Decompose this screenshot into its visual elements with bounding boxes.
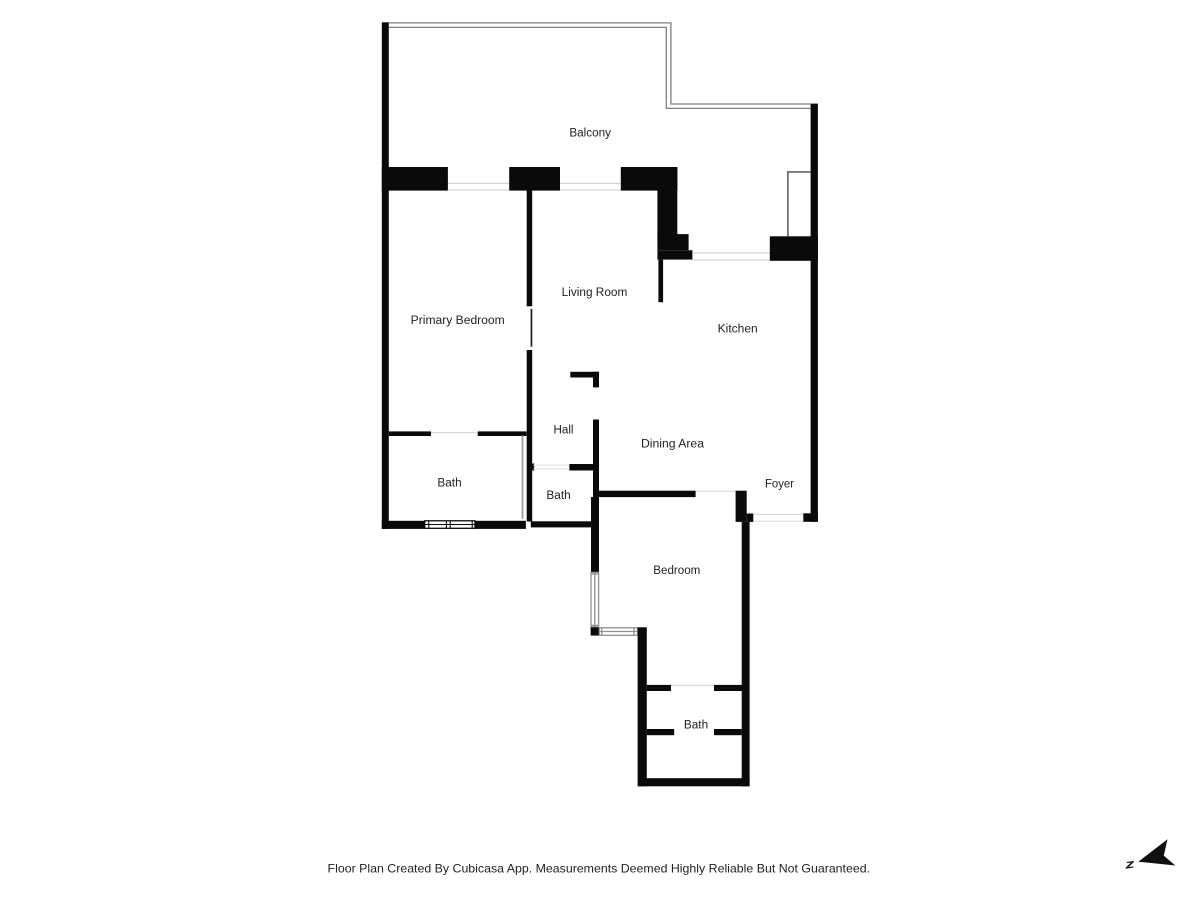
svg-text:Bath: Bath [684, 720, 708, 732]
svg-text:Balcony: Balcony [569, 128, 611, 140]
svg-text:Bath: Bath [437, 478, 461, 490]
svg-text:Living Room: Living Room [562, 287, 628, 299]
svg-text:Hall: Hall [554, 425, 574, 437]
svg-text:Primary Bedroom: Primary Bedroom [411, 315, 505, 327]
svg-text:Foyer: Foyer [765, 479, 794, 491]
svg-text:Bedroom: Bedroom [653, 565, 700, 577]
svg-text:Floor Plan Created By Cubicasa: Floor Plan Created By Cubicasa App. Meas… [328, 862, 871, 876]
svg-text:Dining Area: Dining Area [641, 439, 705, 451]
svg-text:Bath: Bath [546, 490, 570, 502]
svg-text:Kitchen: Kitchen [718, 323, 758, 335]
